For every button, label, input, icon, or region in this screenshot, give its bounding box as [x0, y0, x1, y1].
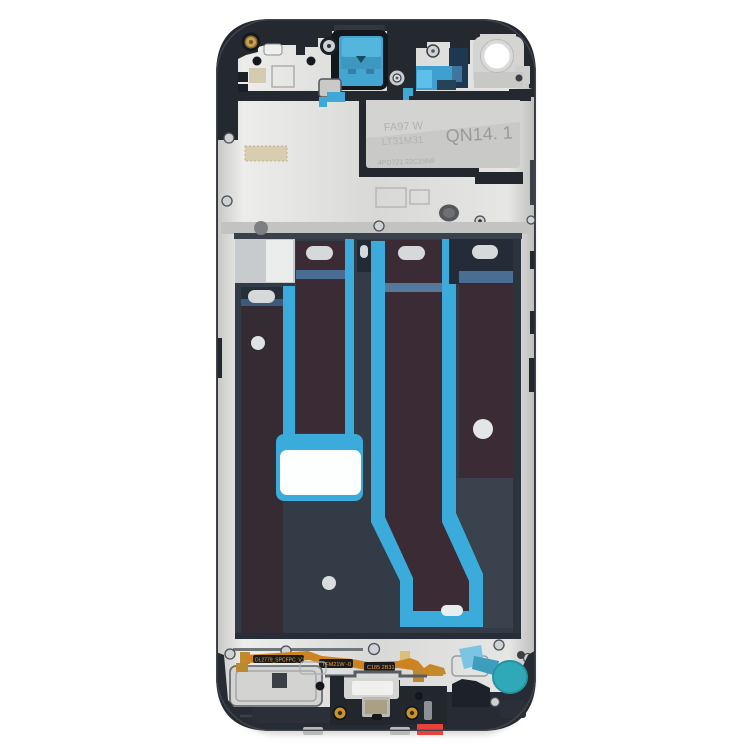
svg-text:C185 2B31: C185 2B31 [367, 665, 395, 671]
svg-text:DL2779_SPCFPC_V1: DL2779_SPCFPC_V1 [255, 658, 305, 664]
svg-text:LT31M31: LT31M31 [382, 135, 424, 148]
svg-text:QN14. 1: QN14. 1 [445, 123, 513, 146]
svg-text:FA97 W: FA97 W [384, 120, 424, 134]
